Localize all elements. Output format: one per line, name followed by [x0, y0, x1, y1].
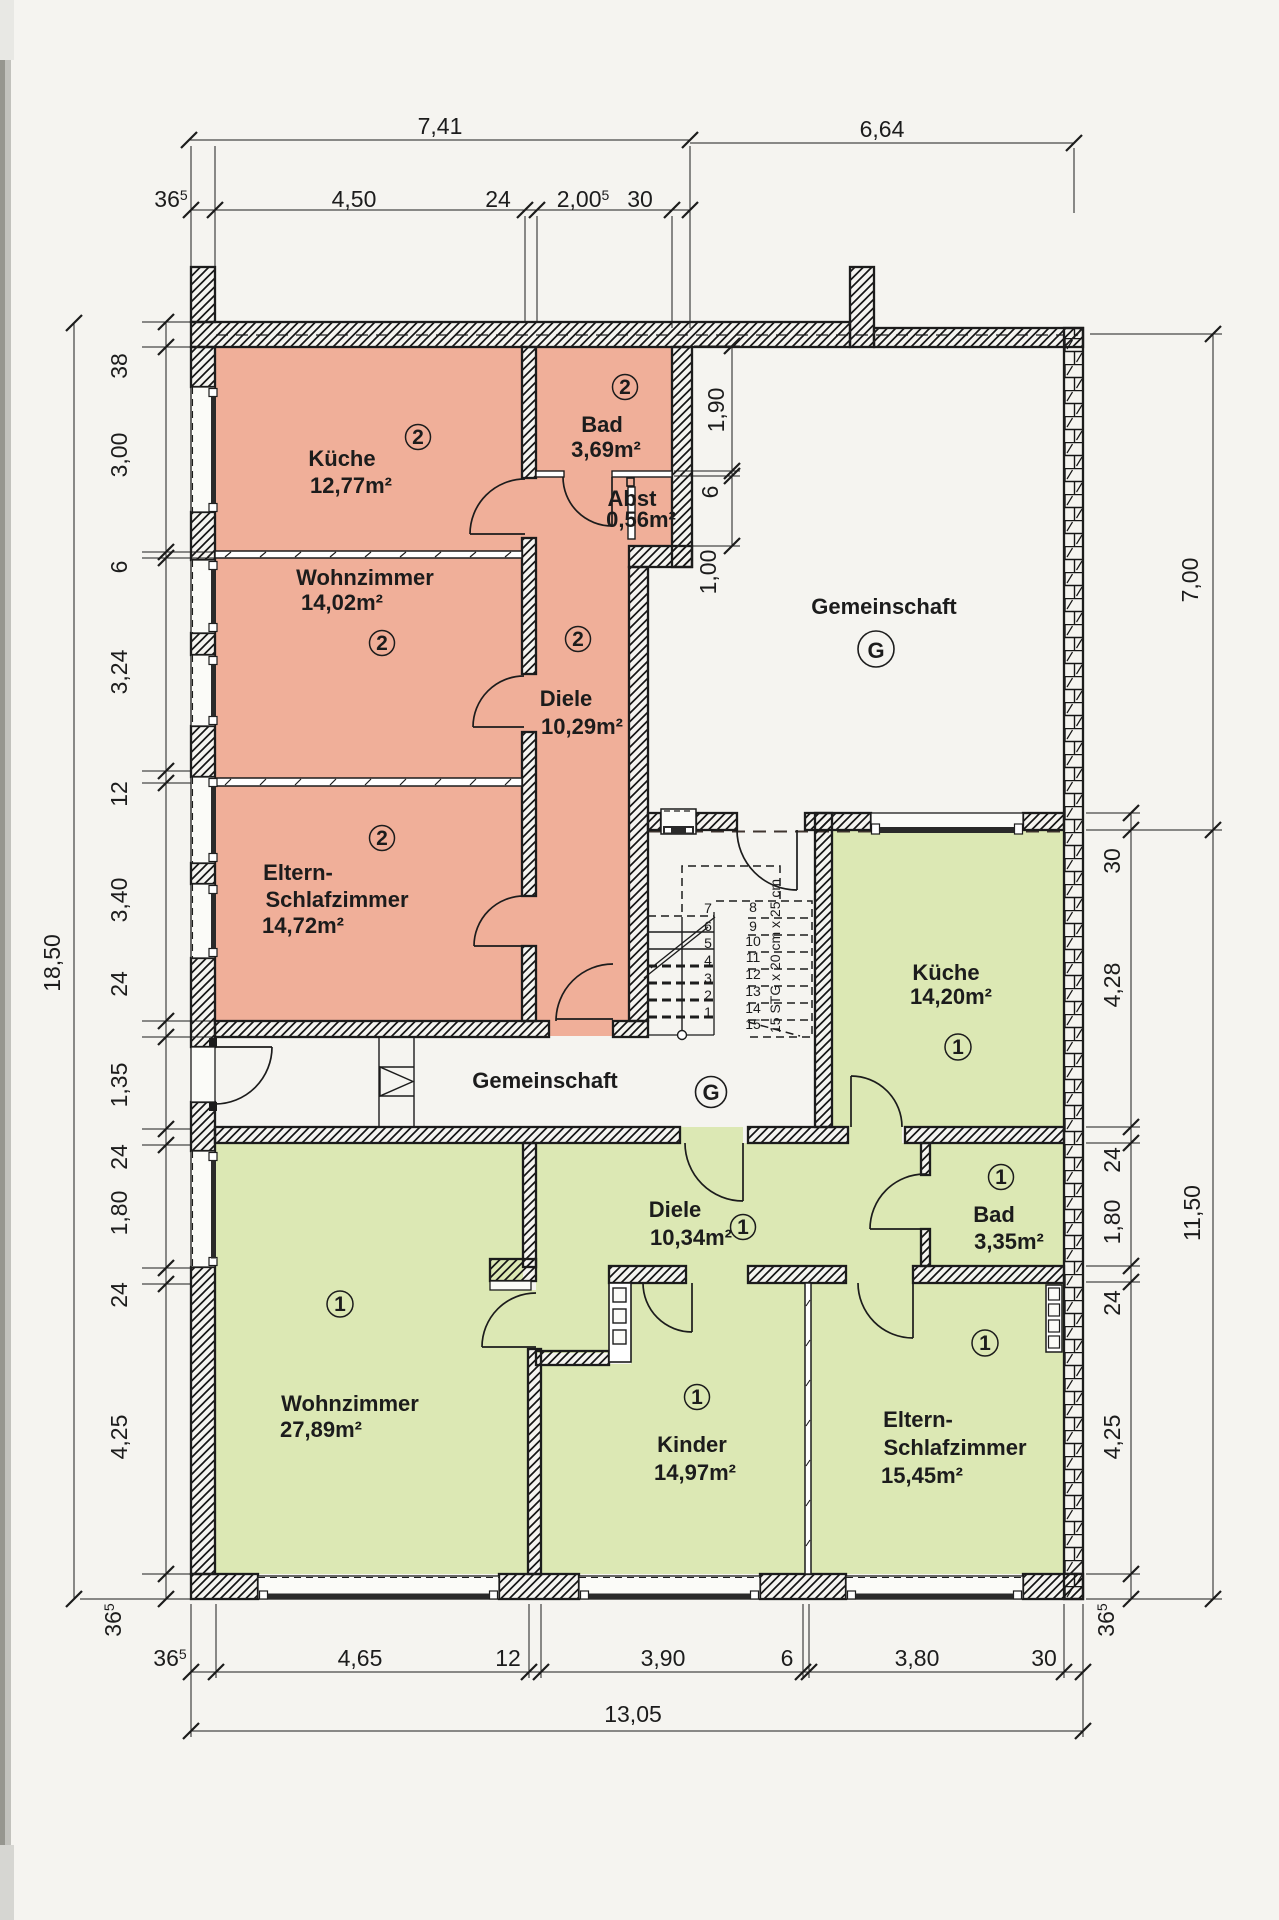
svg-text:13: 13 — [745, 983, 761, 999]
svg-text:3,69m²: 3,69m² — [571, 437, 641, 462]
svg-text:38: 38 — [106, 353, 132, 379]
svg-text:Bad: Bad — [581, 412, 623, 437]
svg-text:Küche: Küche — [308, 446, 375, 471]
svg-text:1: 1 — [737, 1216, 749, 1239]
svg-text:7,41: 7,41 — [418, 113, 463, 139]
svg-text:Eltern-: Eltern- — [263, 860, 333, 885]
svg-text:G: G — [702, 1080, 719, 1105]
svg-text:12: 12 — [106, 781, 132, 807]
svg-text:24: 24 — [1099, 1290, 1125, 1316]
svg-text:7,00: 7,00 — [1177, 558, 1203, 603]
svg-text:15,45m²: 15,45m² — [881, 1463, 963, 1488]
svg-text:0,56m²: 0,56m² — [606, 507, 676, 532]
svg-text:11,50: 11,50 — [1179, 1185, 1205, 1241]
svg-text:Bad: Bad — [973, 1202, 1015, 1227]
svg-text:27,89m²: 27,89m² — [280, 1417, 362, 1442]
svg-text:Wohnzimmer: Wohnzimmer — [281, 1391, 419, 1416]
svg-text:10,29m²: 10,29m² — [541, 714, 623, 739]
svg-text:2: 2 — [376, 632, 388, 655]
svg-text:3: 3 — [704, 970, 712, 986]
svg-text:Gemeinschaft: Gemeinschaft — [472, 1068, 618, 1093]
svg-text:12: 12 — [495, 1645, 521, 1671]
svg-text:Diele: Diele — [540, 686, 593, 711]
svg-text:4: 4 — [704, 952, 712, 968]
svg-text:6: 6 — [781, 1645, 794, 1671]
svg-text:Gemeinschaft: Gemeinschaft — [811, 594, 957, 619]
svg-text:14,02m²: 14,02m² — [301, 590, 383, 615]
svg-text:24: 24 — [106, 1144, 132, 1170]
svg-text:15 STG x 20 cm x 25 cm: 15 STG x 20 cm x 25 cm — [767, 879, 783, 1033]
svg-text:6: 6 — [697, 486, 723, 499]
svg-text:3,40: 3,40 — [106, 878, 132, 923]
svg-text:1: 1 — [979, 1332, 991, 1355]
svg-text:2: 2 — [704, 987, 712, 1003]
svg-text:24: 24 — [1099, 1147, 1125, 1173]
svg-text:3,35m²: 3,35m² — [974, 1229, 1044, 1254]
svg-text:4,65: 4,65 — [338, 1645, 383, 1671]
svg-text:30: 30 — [1031, 1645, 1057, 1671]
svg-text:5: 5 — [704, 935, 712, 951]
svg-text:3,00: 3,00 — [106, 433, 132, 478]
svg-text:24: 24 — [106, 971, 132, 997]
svg-text:1,90: 1,90 — [703, 388, 729, 433]
svg-text:6,64: 6,64 — [860, 116, 905, 142]
svg-text:10,34m²: 10,34m² — [650, 1225, 732, 1250]
svg-text:6: 6 — [704, 918, 712, 934]
svg-text:4,28: 4,28 — [1099, 963, 1125, 1008]
svg-text:1,80: 1,80 — [106, 1191, 132, 1236]
svg-text:24: 24 — [485, 186, 511, 212]
svg-text:1,35: 1,35 — [106, 1063, 132, 1108]
svg-text:4,50: 4,50 — [332, 186, 377, 212]
svg-text:3,90: 3,90 — [641, 1645, 686, 1671]
svg-text:30: 30 — [627, 186, 653, 212]
svg-text:2: 2 — [572, 628, 584, 651]
svg-text:6: 6 — [106, 561, 132, 574]
svg-text:2: 2 — [619, 376, 631, 399]
svg-text:24: 24 — [106, 1282, 132, 1308]
svg-text:15: 15 — [745, 1016, 761, 1032]
svg-text:4,25: 4,25 — [106, 1415, 132, 1460]
svg-text:1: 1 — [704, 1004, 712, 1020]
svg-text:30: 30 — [1099, 848, 1125, 874]
svg-text:11: 11 — [746, 949, 761, 965]
svg-text:G: G — [867, 638, 884, 663]
svg-text:Schlafzimmer: Schlafzimmer — [265, 887, 408, 912]
svg-text:Eltern-: Eltern- — [883, 1407, 953, 1432]
svg-text:Wohnzimmer: Wohnzimmer — [296, 565, 434, 590]
svg-text:Kinder: Kinder — [657, 1432, 727, 1457]
svg-text:14: 14 — [745, 1000, 761, 1016]
svg-text:Küche: Küche — [912, 960, 979, 985]
svg-text:1: 1 — [691, 1386, 703, 1409]
svg-text:3,80: 3,80 — [895, 1645, 940, 1671]
svg-text:2: 2 — [412, 426, 424, 449]
svg-text:Schlafzimmer: Schlafzimmer — [883, 1435, 1026, 1460]
svg-text:10: 10 — [745, 933, 761, 949]
svg-text:7: 7 — [704, 900, 712, 916]
svg-text:12: 12 — [745, 966, 761, 982]
svg-text:1: 1 — [334, 1293, 346, 1316]
svg-text:1: 1 — [952, 1036, 964, 1059]
svg-text:13,05: 13,05 — [604, 1701, 662, 1727]
svg-text:14,72m²: 14,72m² — [262, 913, 344, 938]
svg-text:18,50: 18,50 — [39, 934, 65, 992]
svg-text:14,20m²: 14,20m² — [910, 984, 992, 1009]
svg-text:1,80: 1,80 — [1099, 1200, 1125, 1245]
svg-text:8: 8 — [749, 899, 757, 915]
svg-text:2: 2 — [376, 827, 388, 850]
svg-text:14,97m²: 14,97m² — [654, 1460, 736, 1485]
svg-text:12,77m²: 12,77m² — [310, 473, 392, 498]
svg-text:1: 1 — [995, 1166, 1007, 1189]
svg-text:3,24: 3,24 — [106, 649, 132, 694]
svg-text:9: 9 — [749, 918, 757, 934]
svg-text:4,25: 4,25 — [1099, 1415, 1125, 1460]
svg-text:1,00: 1,00 — [695, 550, 721, 595]
svg-text:Diele: Diele — [649, 1197, 702, 1222]
